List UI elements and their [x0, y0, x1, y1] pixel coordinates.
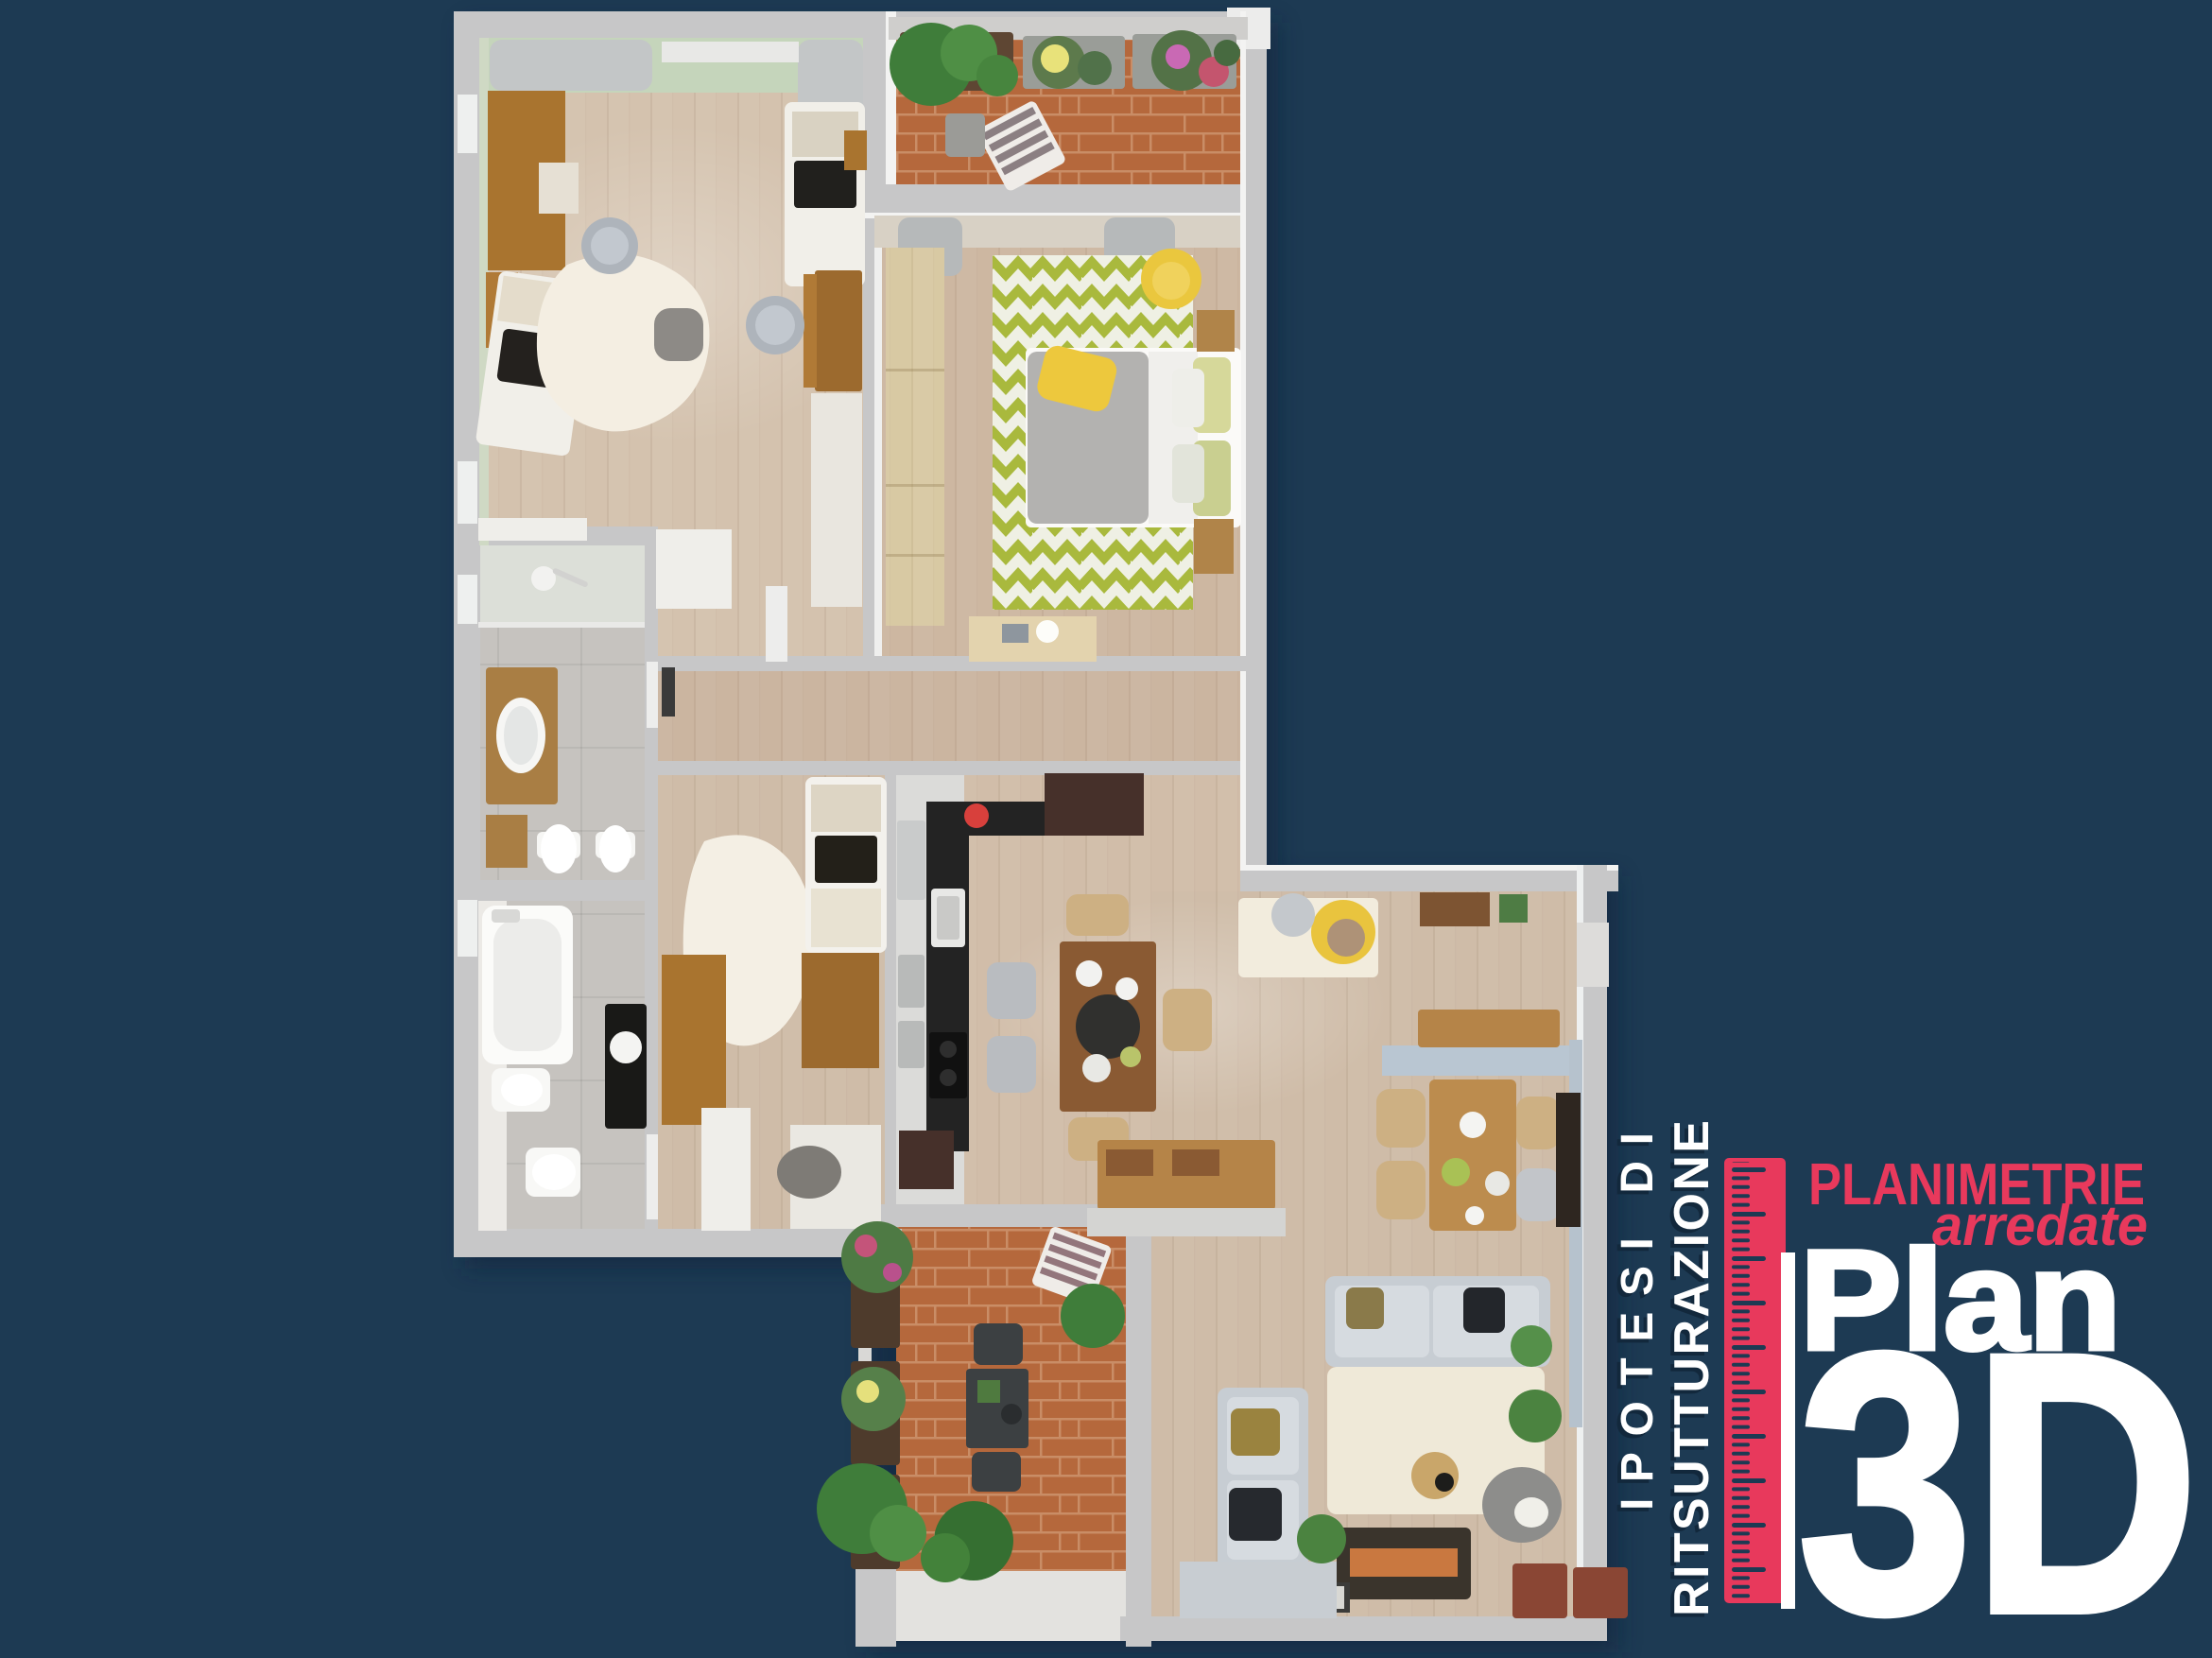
- svg-text:RITSUTTURAZIONE: RITSUTTURAZIONE: [1665, 1120, 1719, 1616]
- svg-text:3D: 3D: [1798, 1277, 2199, 1658]
- svg-text:IPOTESI DI: IPOTESI DI: [1613, 1132, 1663, 1511]
